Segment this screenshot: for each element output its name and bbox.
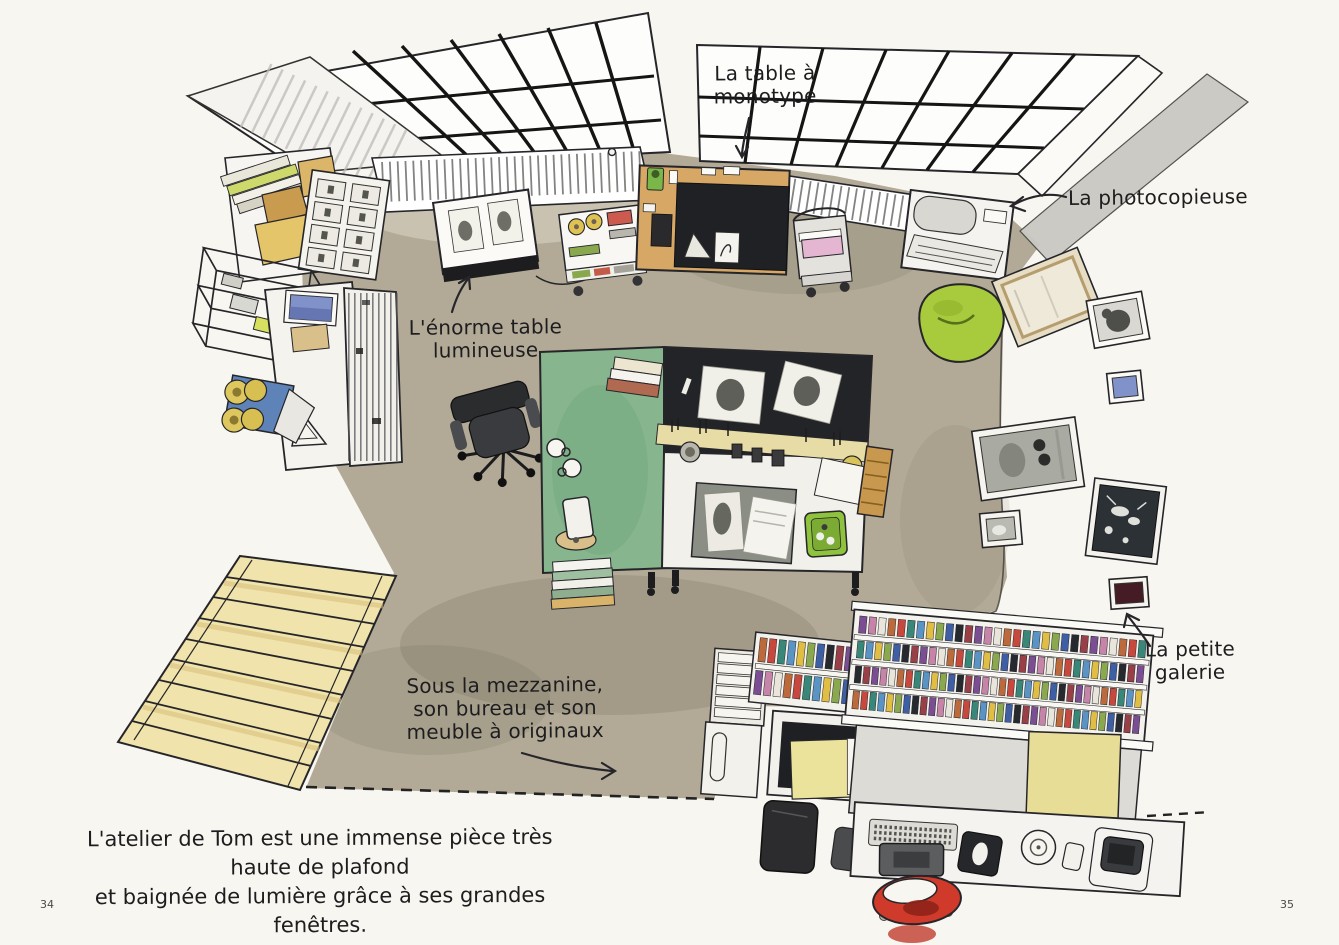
book-page: La table à monotype La photocopieuse L'é… — [0, 0, 1339, 945]
gallery-frame — [1086, 291, 1149, 348]
red-paint-shadow — [888, 925, 936, 943]
gallery-frame — [1107, 370, 1144, 403]
print — [698, 366, 765, 424]
drawer-cabinet — [298, 170, 389, 280]
ink-bottle — [752, 448, 762, 462]
annotation-line: La table à — [700, 61, 830, 85]
print-drying-rack — [344, 288, 402, 466]
annotation-line: lumineuse — [408, 338, 563, 363]
caption-line: et baignée de lumière grâce à ses grande… — [60, 881, 580, 942]
studio-illustration — [0, 0, 1339, 945]
page-number-right: 35 — [1280, 898, 1294, 911]
yellow-folder — [790, 739, 850, 799]
annotation-line: La photocopieuse — [1068, 185, 1268, 210]
bean-bag — [919, 284, 1003, 362]
table-lamp — [562, 496, 593, 539]
cutting-mat — [691, 483, 797, 564]
annotation-monotype-table: La table à monotype — [700, 61, 830, 108]
annotation-line: galerie — [1135, 660, 1245, 684]
annotation-light-table: L'énorme table lumineuse — [408, 315, 563, 363]
annotation-photocopier: La photocopieuse — [1068, 185, 1268, 210]
radiator-valve — [609, 149, 616, 156]
monitor — [879, 843, 943, 876]
photocopier — [901, 190, 1014, 280]
folder — [291, 324, 329, 352]
gallery-frame — [1109, 577, 1149, 610]
annotation-line: monotype — [700, 84, 830, 108]
caption-line: L'atelier de Tom est une immense pièce t… — [60, 823, 580, 884]
gallery-frame — [1085, 478, 1166, 564]
ink-bottle — [732, 444, 742, 458]
framed-picture — [284, 290, 338, 326]
pink-paper-stack — [802, 236, 844, 258]
annotation-line: La petite — [1135, 637, 1245, 661]
annotation-line: L'énorme table — [408, 315, 563, 340]
monotype-table — [636, 163, 790, 274]
book-stack — [606, 356, 662, 397]
annotation-line: meuble à originaux — [405, 719, 605, 744]
ink-bottle — [772, 450, 784, 466]
annotation-mezzanine: Sous la mezzanine, son bureau et son meu… — [405, 673, 606, 744]
black-bag — [760, 800, 819, 874]
central-table — [540, 347, 893, 609]
gallery-frame — [972, 417, 1085, 501]
print-on-press — [714, 232, 739, 263]
paper-stool — [549, 558, 615, 609]
gallery-frame — [980, 510, 1023, 547]
page-number-left: 34 — [40, 898, 54, 911]
green-tray — [805, 511, 848, 558]
page-caption: L'atelier de Tom est une immense pièce t… — [60, 823, 581, 942]
annotation-small-gallery: La petite galerie — [1135, 637, 1245, 684]
